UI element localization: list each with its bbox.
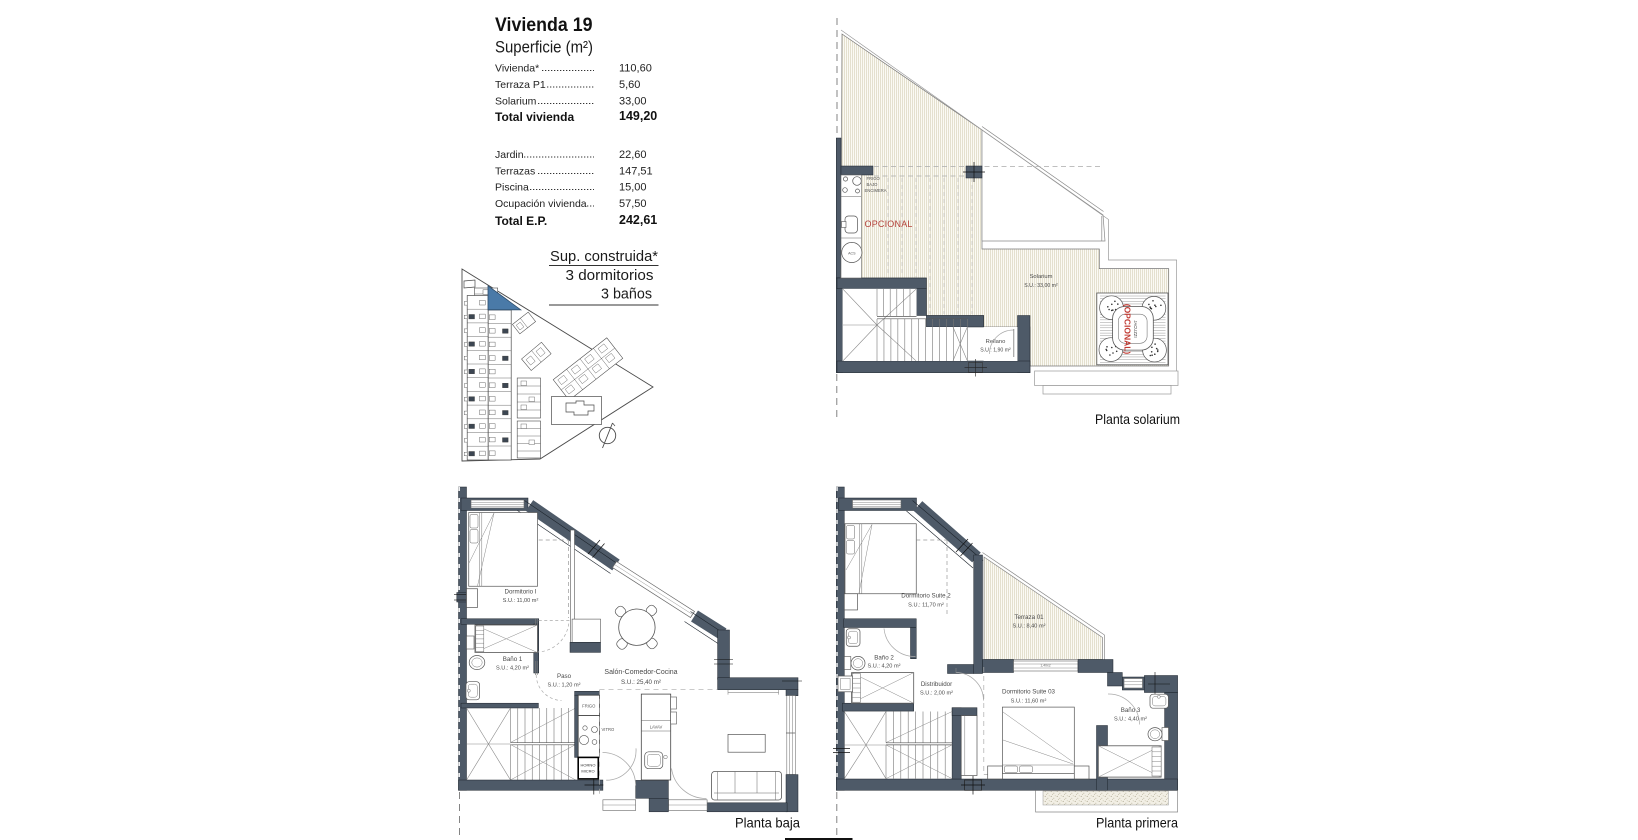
svg-text:ENCIMERA: ENCIMERA — [865, 188, 887, 193]
svg-text:15,00: 15,00 — [619, 182, 647, 194]
svg-text:3 baños: 3 baños — [601, 287, 652, 303]
svg-text:Piscina: Piscina — [495, 182, 529, 194]
svg-text:Terrazas: Terrazas — [495, 166, 535, 178]
svg-text:Ocupación vivienda: Ocupación vivienda — [495, 198, 587, 210]
svg-text:HORNO: HORNO — [581, 763, 596, 768]
svg-text:Solarium: Solarium — [495, 96, 537, 108]
svg-text:Planta primera: Planta primera — [1096, 815, 1178, 831]
svg-text:Paso: Paso — [557, 673, 572, 680]
svg-text:S.U.: 4,40 m²: S.U.: 4,40 m² — [1114, 717, 1147, 723]
svg-text:S.U.: 1,20 m²: S.U.: 1,20 m² — [548, 683, 581, 689]
svg-text:S.U.: 4,20 m²: S.U.: 4,20 m² — [496, 666, 529, 672]
svg-text:BAJO: BAJO — [867, 182, 879, 187]
svg-text:OPCIONAL: OPCIONAL — [865, 219, 913, 229]
svg-text:Planta solarium: Planta solarium — [1095, 411, 1180, 427]
svg-text:242,61: 242,61 — [619, 213, 657, 227]
svg-text:33,00: 33,00 — [619, 96, 647, 108]
svg-text:Baño 2: Baño 2 — [874, 655, 894, 662]
svg-text:57,50: 57,50 — [619, 198, 647, 210]
svg-text:S.U.: 33,00 m²: S.U.: 33,00 m² — [1024, 283, 1058, 289]
svg-text:ACS: ACS — [848, 252, 856, 256]
svg-text:5,60: 5,60 — [619, 79, 640, 91]
svg-text:3 dormitorios: 3 dormitorios — [566, 268, 654, 284]
svg-text:22,60: 22,60 — [619, 149, 647, 161]
svg-text:Jardin: Jardin — [495, 149, 524, 161]
svg-text:S.U.: 25,40 m²: S.U.: 25,40 m² — [621, 679, 661, 686]
svg-text:Salón-Comedor-Cocina: Salón-Comedor-Cocina — [604, 669, 677, 676]
svg-text:Dormitorio Suite 03: Dormitorio Suite 03 — [1002, 689, 1056, 696]
svg-text:S.U.: 2,00 m²: S.U.: 2,00 m² — [920, 691, 953, 697]
svg-text:1,40x2: 1,40x2 — [1040, 664, 1050, 668]
svg-text:Terraza P1: Terraza P1 — [495, 79, 546, 91]
svg-text:Planta baja: Planta baja — [735, 815, 800, 831]
svg-text:Dormitorio Suite 2: Dormitorio Suite 2 — [901, 593, 951, 600]
svg-text:Baño 3: Baño 3 — [1121, 707, 1141, 714]
svg-text:Solarium: Solarium — [1030, 274, 1053, 280]
svg-text:FRIGO: FRIGO — [582, 704, 596, 709]
svg-text:S.U.: 8,40 m²: S.U.: 8,40 m² — [1013, 624, 1046, 630]
svg-text:Superficie (m²): Superficie (m²) — [495, 39, 593, 57]
svg-text:Vivienda 19: Vivienda 19 — [495, 14, 593, 36]
svg-text:LAVAV: LAVAV — [650, 725, 663, 730]
svg-text:VITRO: VITRO — [602, 727, 616, 732]
svg-text:Vivienda*: Vivienda* — [495, 63, 539, 75]
svg-text:110,60: 110,60 — [619, 63, 652, 75]
svg-text:Distribuidor: Distribuidor — [921, 681, 952, 688]
svg-text:FRIGO: FRIGO — [867, 176, 881, 181]
svg-text:Baño 1: Baño 1 — [503, 656, 523, 663]
svg-text:S.U.: 1,90 m²: S.U.: 1,90 m² — [980, 348, 1011, 354]
svg-text:Sup. construida*: Sup. construida* — [550, 249, 658, 265]
svg-text:149,20: 149,20 — [619, 109, 657, 123]
svg-text:Terraza 01: Terraza 01 — [1014, 614, 1044, 621]
svg-text:JACUZZI: JACUZZI — [1133, 320, 1138, 337]
svg-text:S.U.: 11,60 m²: S.U.: 11,60 m² — [1011, 699, 1047, 705]
svg-text:Total vivienda: Total vivienda — [495, 110, 574, 124]
svg-text:(OPCIONAL): (OPCIONAL) — [1123, 304, 1133, 355]
svg-text:Rellano: Rellano — [986, 339, 1006, 345]
svg-text:S.U.: 4,20 m²: S.U.: 4,20 m² — [868, 664, 901, 670]
svg-text:S.U.: 11,70 m²: S.U.: 11,70 m² — [908, 603, 944, 609]
svg-text:MICRO: MICRO — [581, 769, 594, 774]
svg-text:Dormitorio I: Dormitorio I — [505, 589, 537, 596]
svg-text:Total E.P.: Total E.P. — [495, 214, 547, 228]
svg-text:147,51: 147,51 — [619, 166, 653, 178]
svg-text:S.U.: 11,00 m²: S.U.: 11,00 m² — [503, 598, 539, 604]
